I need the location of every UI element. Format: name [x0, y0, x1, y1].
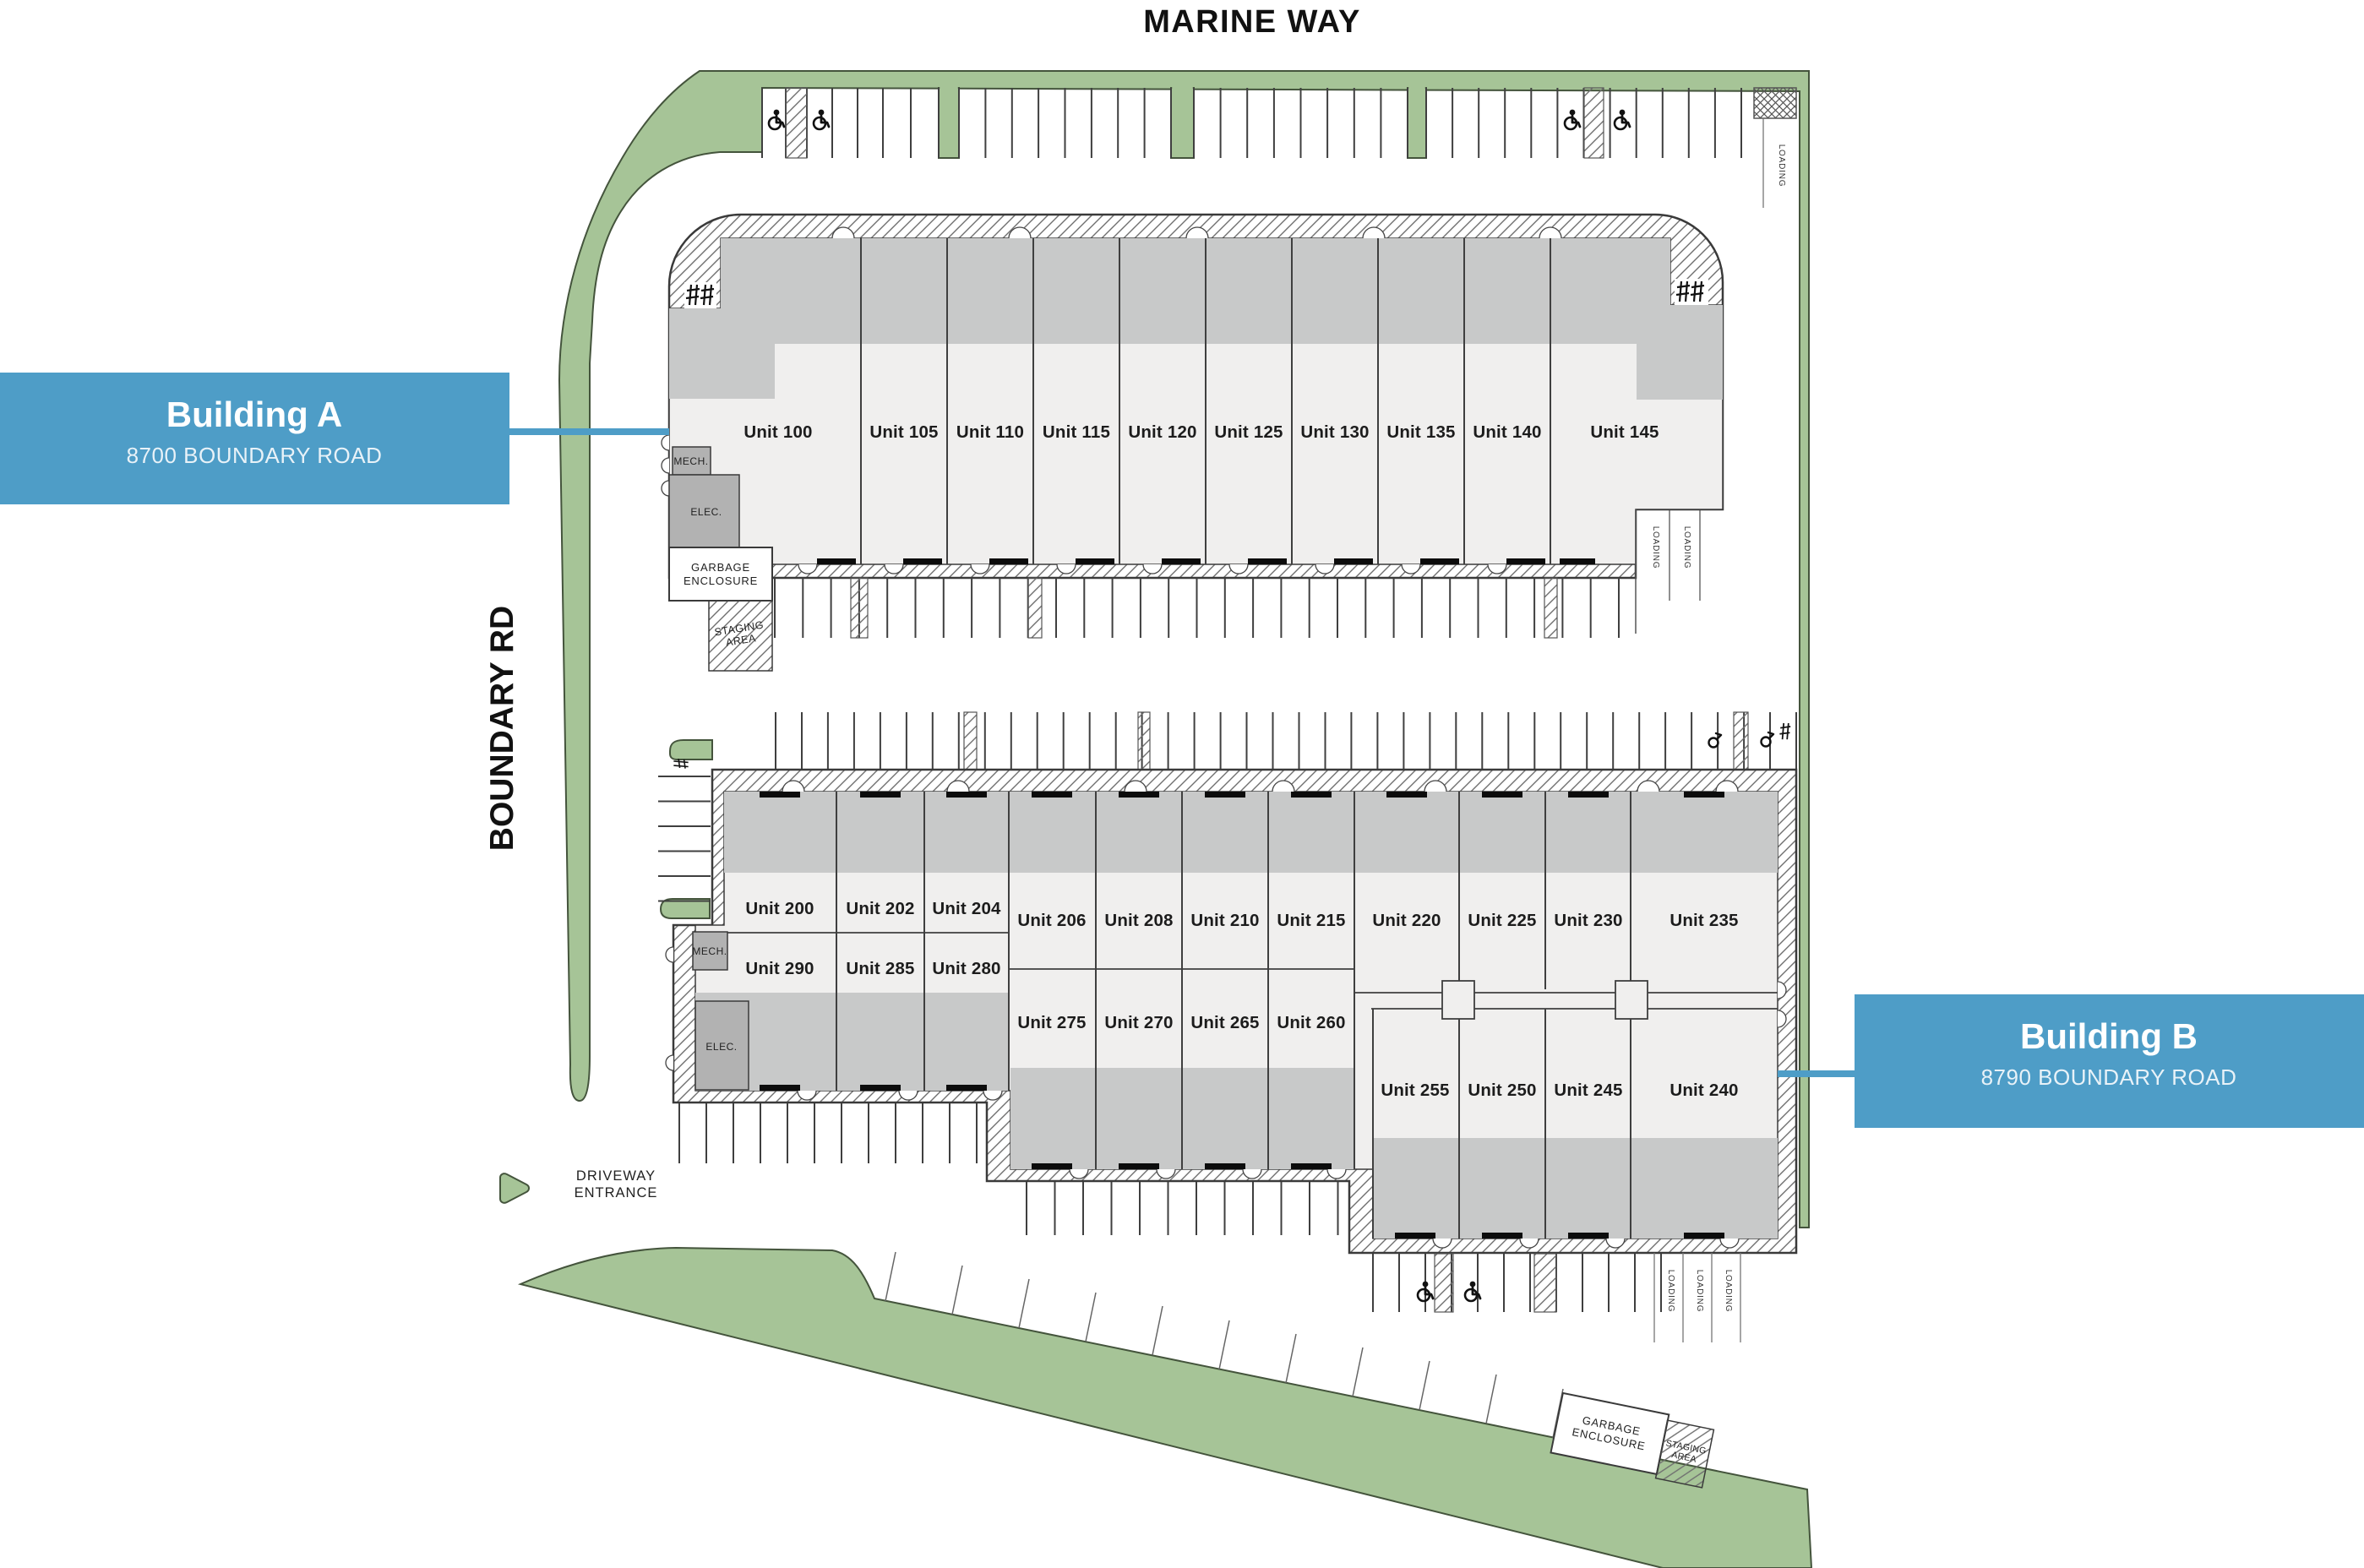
svg-text:LOADING: LOADING: [1682, 526, 1691, 569]
svg-text:Unit 235: Unit 235: [1670, 911, 1738, 930]
svg-text:Unit 220: Unit 220: [1372, 911, 1441, 930]
svg-text:Unit 100: Unit 100: [744, 422, 812, 442]
svg-text:Building B: Building B: [2020, 1016, 2198, 1056]
svg-text:Unit 280: Unit 280: [932, 959, 1000, 978]
svg-text:Unit 255: Unit 255: [1381, 1081, 1449, 1100]
svg-text:Unit 140: Unit 140: [1473, 422, 1541, 442]
svg-text:Unit 270: Unit 270: [1104, 1013, 1173, 1032]
svg-text:Unit 130: Unit 130: [1300, 422, 1369, 442]
svg-text:Unit 200: Unit 200: [745, 899, 814, 918]
svg-text:Unit 215: Unit 215: [1277, 911, 1345, 930]
svg-text:MARINE WAY: MARINE WAY: [1143, 4, 1361, 40]
svg-text:MECH.: MECH.: [673, 455, 708, 467]
svg-text:ENCLOSURE: ENCLOSURE: [684, 574, 758, 587]
svg-text:Unit 210: Unit 210: [1190, 911, 1259, 930]
svg-text:BOUNDARY RD: BOUNDARY RD: [484, 606, 520, 851]
svg-text:Unit 250: Unit 250: [1468, 1081, 1536, 1100]
svg-text:Unit 225: Unit 225: [1468, 911, 1536, 930]
svg-text:ENTRANCE: ENTRANCE: [575, 1185, 658, 1200]
svg-text:Unit 202: Unit 202: [846, 899, 914, 918]
svg-text:Unit 245: Unit 245: [1554, 1081, 1622, 1100]
svg-text:Unit 206: Unit 206: [1017, 911, 1086, 930]
svg-text:ELEC.: ELEC.: [690, 506, 722, 518]
svg-text:LOADING: LOADING: [1777, 144, 1786, 188]
svg-text:Unit 285: Unit 285: [846, 959, 914, 978]
svg-text:Unit 290: Unit 290: [745, 959, 814, 978]
svg-text:Unit 208: Unit 208: [1104, 911, 1173, 930]
svg-text:Unit 125: Unit 125: [1214, 422, 1283, 442]
svg-text:Unit 120: Unit 120: [1128, 422, 1196, 442]
svg-text:Unit 260: Unit 260: [1277, 1013, 1345, 1032]
svg-text:LOADING: LOADING: [1724, 1270, 1733, 1313]
svg-text:Unit 204: Unit 204: [932, 899, 1001, 918]
svg-text:8700 BOUNDARY ROAD: 8700 BOUNDARY ROAD: [127, 443, 383, 468]
svg-text:Unit 105: Unit 105: [869, 422, 938, 442]
svg-text:Building A: Building A: [166, 395, 342, 434]
svg-text:DRIVEWAY: DRIVEWAY: [576, 1168, 656, 1184]
svg-text:LOADING: LOADING: [1651, 526, 1660, 569]
svg-text:8790 BOUNDARY ROAD: 8790 BOUNDARY ROAD: [1981, 1064, 2237, 1090]
svg-text:Unit 275: Unit 275: [1017, 1013, 1086, 1032]
svg-text:LOADING: LOADING: [1666, 1270, 1675, 1313]
svg-text:Unit 110: Unit 110: [956, 422, 1024, 442]
svg-text:Unit 265: Unit 265: [1190, 1013, 1259, 1032]
svg-text:GARBAGE: GARBAGE: [691, 561, 750, 574]
svg-text:Unit 240: Unit 240: [1670, 1081, 1738, 1100]
svg-text:ELEC.: ELEC.: [705, 1041, 737, 1053]
svg-text:Unit 115: Unit 115: [1043, 422, 1110, 442]
svg-text:Unit 230: Unit 230: [1554, 911, 1622, 930]
svg-text:MECH.: MECH.: [692, 945, 727, 957]
svg-text:LOADING: LOADING: [1695, 1270, 1704, 1313]
svg-text:Unit 145: Unit 145: [1590, 422, 1659, 442]
svg-text:Unit 135: Unit 135: [1386, 422, 1455, 442]
